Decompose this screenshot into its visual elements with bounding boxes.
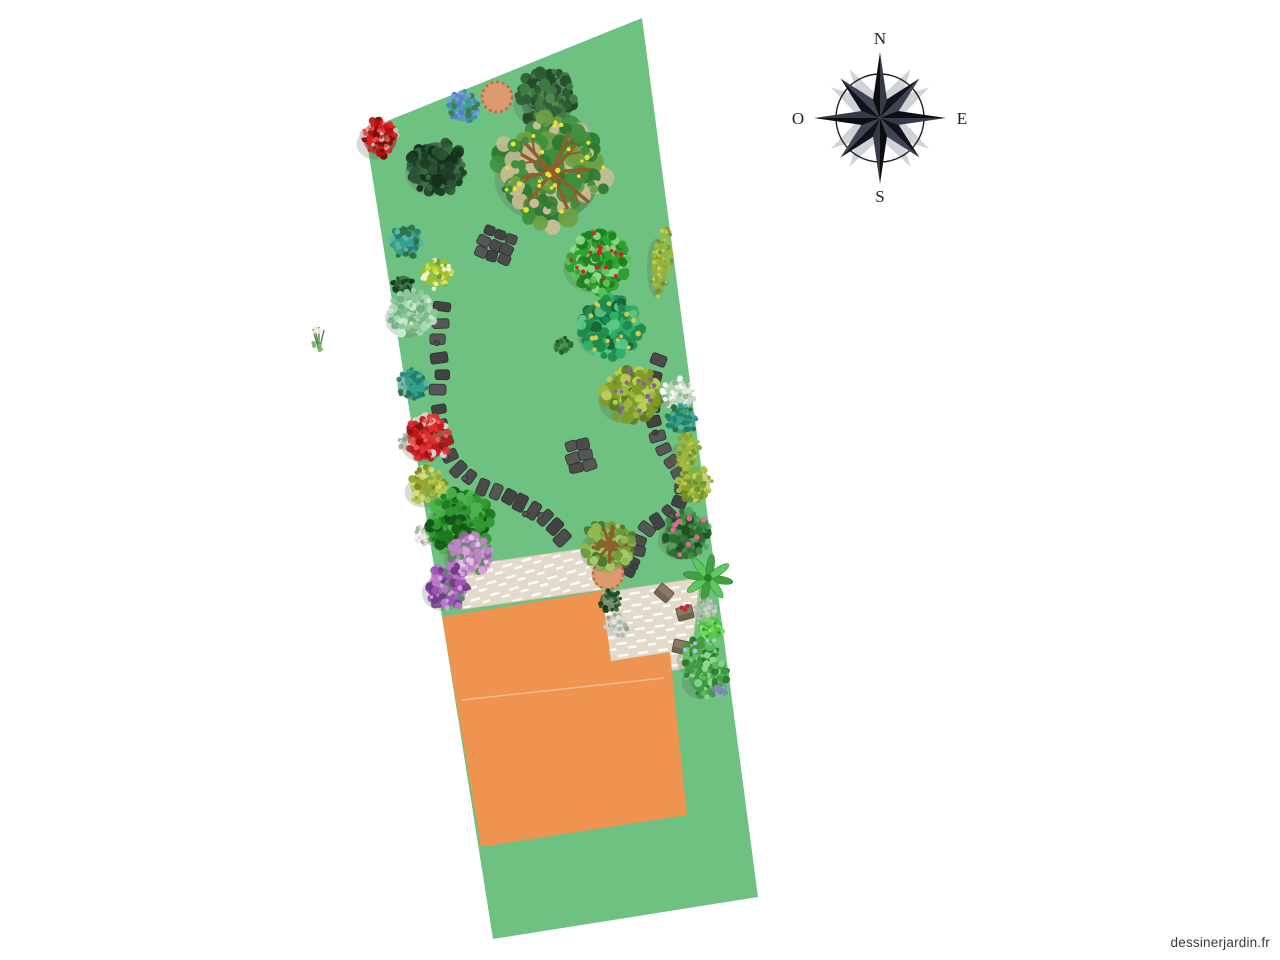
terracotta-pot[interactable] <box>481 81 513 113</box>
compass-label-north: N <box>874 29 886 48</box>
garden-plan-canvas: NSEO dessinerjardin.fr <box>0 0 1280 960</box>
compass-label-west: O <box>792 109 804 128</box>
compass-rose[interactable]: NSEO <box>792 29 967 206</box>
compass-label-east: E <box>957 109 967 128</box>
lupine-sprig[interactable] <box>311 326 324 352</box>
plan-svg: NSEO <box>0 0 1280 960</box>
compass-label-south: S <box>875 187 884 206</box>
watermark: dessinerjardin.fr <box>1171 935 1270 950</box>
